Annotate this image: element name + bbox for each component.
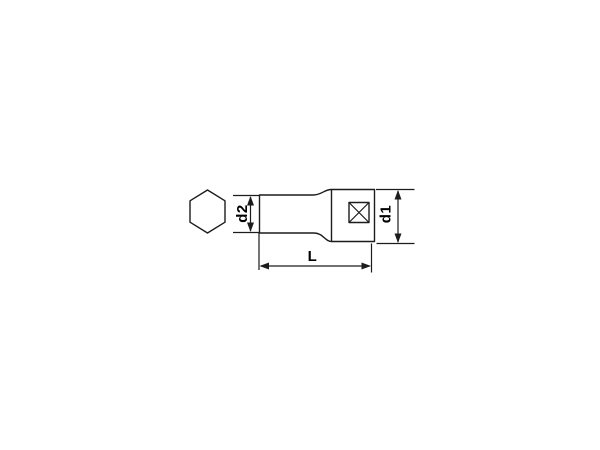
d2-down-arrow [247,223,254,233]
d2-up-arrow [247,196,254,206]
d2-label: d2 [234,204,251,223]
socket-dimension-drawing: d2 d1 L [0,0,600,450]
hex-end-view [190,190,225,233]
square-drive-cross [349,203,369,223]
socket-body-outline [260,190,332,242]
d1-up-arrow [395,190,402,200]
length-label: L [308,248,318,265]
d1-down-arrow [395,234,402,244]
diagram-stage: d2 d1 L [0,0,600,450]
dim-d1: d1 [376,190,415,244]
dim-d2: d2 [233,196,260,233]
drive-head-outline [332,190,375,242]
socket-side-view [260,190,375,242]
length-right-arrow [362,263,372,270]
length-left-arrow [260,263,270,270]
hexagon-outline [190,190,225,233]
dim-length: L [259,233,372,273]
d1-label: d1 [377,205,394,224]
